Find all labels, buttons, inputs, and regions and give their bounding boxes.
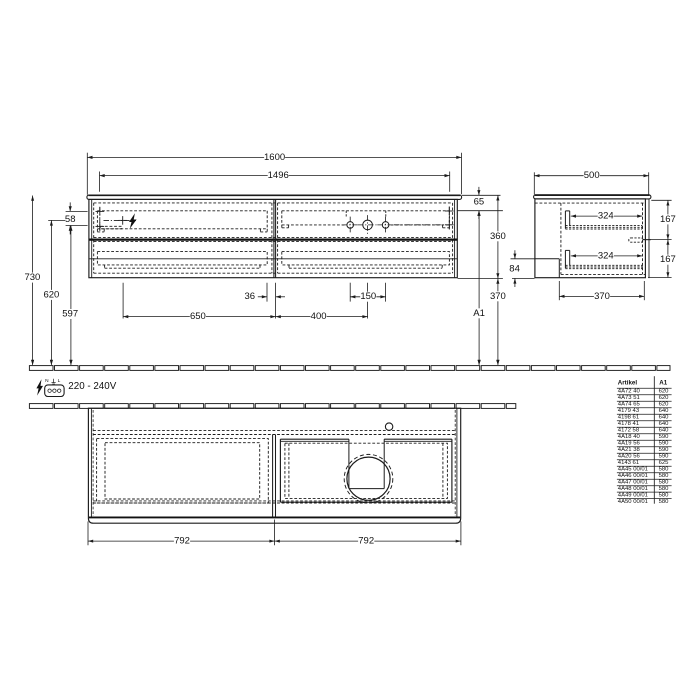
svg-text:620: 620: [659, 402, 670, 408]
svg-text:580: 580: [659, 499, 670, 505]
svg-text:4179 43: 4179 43: [618, 408, 640, 414]
svg-text:590: 590: [659, 447, 670, 453]
svg-text:1496: 1496: [268, 170, 289, 181]
svg-text:4A73 51: 4A73 51: [618, 395, 640, 401]
svg-text:597: 597: [62, 309, 78, 320]
svg-text:580: 580: [659, 466, 670, 472]
svg-text:730: 730: [24, 272, 40, 283]
svg-text:L: L: [58, 378, 61, 384]
svg-text:4A45 00/01: 4A45 00/01: [618, 466, 648, 472]
svg-text:4A50 00/01: 4A50 00/01: [618, 499, 648, 505]
svg-text:620: 620: [659, 389, 670, 395]
svg-text:360: 360: [490, 231, 506, 242]
svg-text:625: 625: [659, 460, 670, 466]
svg-text:36: 36: [245, 291, 256, 302]
svg-text:4A49 00/01: 4A49 00/01: [618, 492, 648, 498]
svg-text:58: 58: [65, 214, 76, 225]
svg-text:84: 84: [509, 264, 520, 275]
svg-text:650: 650: [190, 311, 206, 322]
svg-text:4A20 56: 4A20 56: [618, 453, 641, 459]
svg-text:324: 324: [598, 211, 614, 222]
svg-text:620: 620: [659, 395, 670, 401]
svg-text:792: 792: [358, 536, 374, 547]
svg-text:4A47 00/01: 4A47 00/01: [618, 479, 648, 485]
svg-text:640: 640: [659, 428, 670, 434]
svg-text:1600: 1600: [264, 152, 285, 163]
svg-text:4178 41: 4178 41: [618, 421, 639, 427]
svg-text:167: 167: [660, 214, 676, 225]
svg-text:590: 590: [659, 441, 670, 447]
svg-text:4A48 00/01: 4A48 00/01: [618, 486, 648, 492]
svg-text:590: 590: [659, 453, 670, 459]
svg-text:65: 65: [474, 196, 485, 207]
svg-text:Artikel: Artikel: [618, 380, 638, 387]
svg-text:4172 58: 4172 58: [618, 428, 640, 434]
svg-text:4A72 40: 4A72 40: [618, 389, 641, 395]
svg-text:580: 580: [659, 486, 670, 492]
svg-text:4A21 38: 4A21 38: [618, 447, 641, 453]
svg-text:A1: A1: [473, 308, 485, 319]
svg-text:640: 640: [659, 421, 670, 427]
svg-text:620: 620: [43, 289, 59, 300]
svg-text:N: N: [45, 378, 49, 384]
svg-text:792: 792: [174, 536, 190, 547]
svg-text:500: 500: [584, 170, 600, 181]
svg-text:370: 370: [490, 291, 506, 302]
svg-text:4A74 65: 4A74 65: [618, 402, 641, 408]
svg-text:640: 640: [659, 408, 670, 414]
svg-text:580: 580: [659, 492, 670, 498]
svg-text:150: 150: [360, 291, 376, 302]
svg-text:4A18 40: 4A18 40: [618, 434, 641, 440]
svg-text:400: 400: [311, 311, 327, 322]
svg-text:640: 640: [659, 415, 670, 421]
svg-text:4A46 00/01: 4A46 00/01: [618, 473, 648, 479]
svg-text:4143 61: 4143 61: [618, 460, 639, 466]
svg-text:324: 324: [598, 251, 614, 262]
svg-text:580: 580: [659, 473, 670, 479]
svg-text:167: 167: [660, 254, 676, 265]
svg-text:4198 61: 4198 61: [618, 415, 639, 421]
svg-text:590: 590: [659, 434, 670, 440]
svg-text:4A19 56: 4A19 56: [618, 441, 641, 447]
svg-text:370: 370: [594, 291, 610, 302]
svg-text:A1: A1: [659, 380, 667, 387]
svg-text:580: 580: [659, 479, 670, 485]
svg-text:220 - 240V: 220 - 240V: [68, 381, 116, 392]
